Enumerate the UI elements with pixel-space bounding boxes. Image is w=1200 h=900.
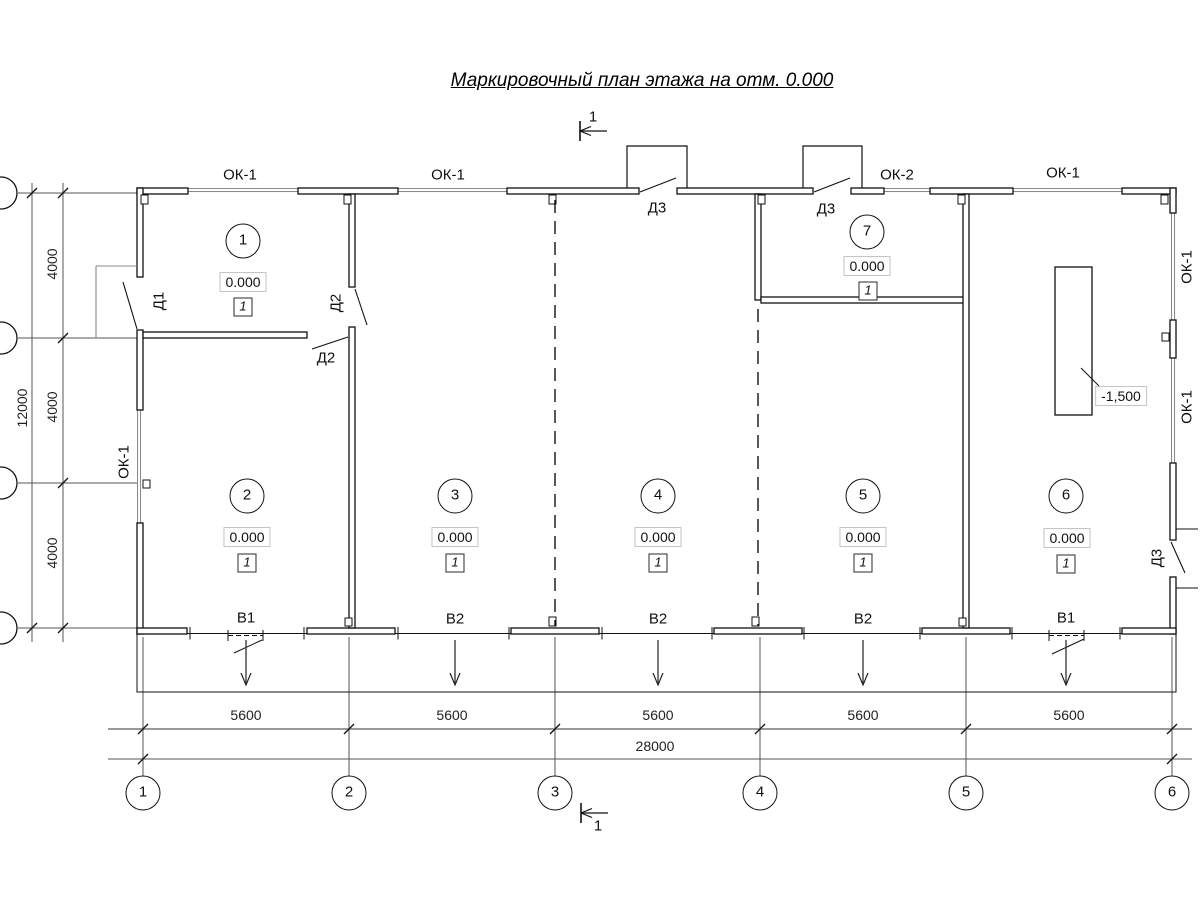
window-label-ok1-top-2: ОК-1	[431, 167, 465, 184]
door-label-d3-top-1: Д3	[648, 200, 667, 217]
room-elevation: 0.000	[634, 527, 681, 547]
window-label-ok1-top-1: ОК-1	[223, 167, 257, 184]
dim-row-1: 4000	[44, 248, 60, 279]
door-leaf-d2-lower	[312, 337, 348, 349]
dim-bay-3: 5600	[642, 707, 673, 723]
room-finish-mark: 1	[854, 554, 873, 573]
window-label-ok1-right-1: ОК-1	[1179, 250, 1196, 284]
pit-leader-line	[1081, 368, 1099, 386]
window-label-ok2-top: ОК-2	[880, 167, 914, 184]
section-mark-label-top: 1	[589, 109, 597, 126]
window-ok1-top-3	[1013, 189, 1122, 192]
gate-label-v1-right: В1	[1057, 610, 1075, 627]
dim-row-2: 4000	[44, 391, 60, 422]
door-leaf-d3-top-2	[814, 178, 850, 192]
plan-linework	[0, 0, 1200, 900]
apron-band	[137, 634, 1176, 692]
room-number-circle: 5	[846, 479, 881, 514]
room-finish-mark: 1	[238, 554, 257, 573]
door-label-d2-lower: Д2	[317, 350, 336, 367]
axis-circle-3: 3	[538, 776, 573, 811]
room-elevation: 0.000	[839, 527, 886, 547]
axis-circle-2: 2	[332, 776, 367, 811]
dim-total-width: 28000	[636, 738, 675, 754]
entrance-porches-top	[627, 146, 862, 188]
room-number-circle: 2	[230, 479, 265, 514]
room-number-circle: 6	[1049, 479, 1084, 514]
axis-circle-5: 5	[949, 776, 984, 811]
pit-outline	[1055, 267, 1092, 415]
pit-elevation-label: -1,500	[1095, 386, 1147, 406]
window-ok1-top-1	[188, 189, 298, 192]
room-number-circle: 1	[226, 224, 261, 259]
drawing-title: Маркировочный план этажа на отм. 0.000	[451, 70, 834, 92]
gate-label-v2-1: В2	[446, 611, 464, 628]
dim-bay-2: 5600	[436, 707, 467, 723]
window-ok1-top-2	[398, 189, 507, 192]
door-leaf-d3-top-1	[640, 178, 676, 192]
room-finish-mark: 1	[1057, 555, 1076, 574]
dim-bay-5: 5600	[1053, 707, 1084, 723]
room-number-circle: 3	[438, 479, 473, 514]
room-elevation: 0.000	[431, 527, 478, 547]
window-ok1-left	[138, 410, 141, 523]
room-elevation: 0.000	[1043, 528, 1090, 548]
room-elevation: 0.000	[219, 272, 266, 292]
door-leaf-d2-upper	[355, 289, 367, 325]
door-label-d1: Д1	[151, 292, 168, 311]
pit	[1055, 267, 1099, 415]
room-elevation: 0.000	[223, 527, 270, 547]
window-label-ok1-right-2: ОК-1	[1179, 390, 1196, 424]
room-finish-mark: 1	[859, 282, 878, 301]
window-ok2-top	[884, 189, 930, 192]
window-label-ok1-top-3: ОК-1	[1046, 165, 1080, 182]
window-label-ok1-left: ОК-1	[116, 445, 133, 479]
gate-v1-leaves	[228, 636, 1084, 655]
window-ok1-right-1	[1172, 213, 1175, 320]
room-number-circle: 4	[641, 479, 676, 514]
windows	[138, 189, 1175, 523]
gate-label-v2-3: В2	[854, 611, 872, 628]
axis-circle-1: 1	[126, 776, 161, 811]
door-label-d3-right: Д3	[1149, 549, 1166, 568]
room-elevation: 0.000	[843, 256, 890, 276]
door-leaf-d3-right	[1171, 542, 1185, 573]
entrance-porch-left	[96, 266, 137, 338]
gate-label-v2-2: В2	[649, 611, 667, 628]
gate-label-v1-left: В1	[237, 610, 255, 627]
axis-extension-lines-left	[18, 193, 137, 628]
dim-bay-4: 5600	[847, 707, 878, 723]
dimension-ticks	[27, 188, 1177, 764]
room-finish-mark: 1	[234, 298, 253, 317]
room-finish-mark: 1	[649, 554, 668, 573]
axis-circle-4: 4	[743, 776, 778, 811]
right-door-landing	[1176, 529, 1198, 588]
door-swings	[123, 178, 1185, 573]
dim-bay-1: 5600	[230, 707, 261, 723]
window-ok1-right-2	[1172, 358, 1175, 463]
gate-arrows	[241, 640, 1071, 685]
room-finish-mark: 1	[446, 554, 465, 573]
axis-circle-6: 6	[1155, 776, 1190, 811]
door-label-d3-top-2: Д3	[817, 201, 836, 218]
room-number-circle: 7	[850, 215, 885, 250]
door-label-d2-upper: Д2	[328, 294, 345, 313]
dim-row-3: 4000	[44, 537, 60, 568]
section-mark-label-bottom: 1	[594, 818, 602, 835]
floor-plan-drawing: Маркировочный план этажа на отм. 0.000 1…	[0, 0, 1200, 900]
section-marks	[580, 121, 608, 823]
door-leaf-d1	[123, 282, 137, 329]
dim-total-height: 12000	[14, 389, 30, 428]
